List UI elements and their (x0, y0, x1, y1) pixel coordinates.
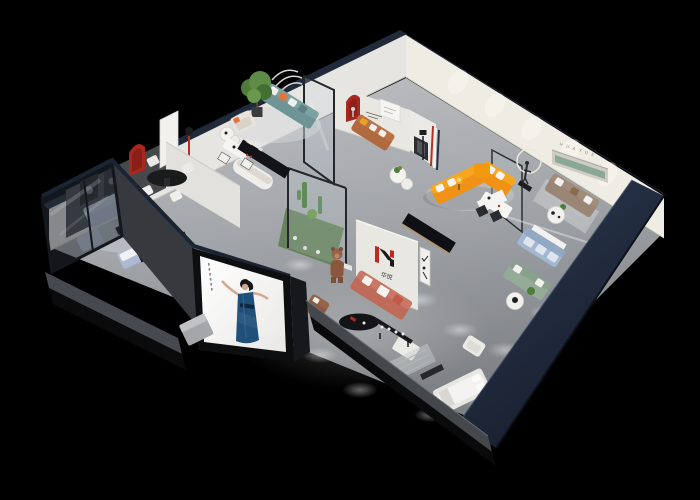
white-round-table (548, 207, 565, 224)
plant (527, 287, 535, 295)
figurine (351, 107, 355, 111)
render-canvas: H U A Y U E (0, 0, 700, 500)
mirror-display-panel (420, 247, 430, 286)
showroom-render: H U A Y U E (0, 0, 700, 500)
black-oval-coffee-table (339, 314, 379, 331)
